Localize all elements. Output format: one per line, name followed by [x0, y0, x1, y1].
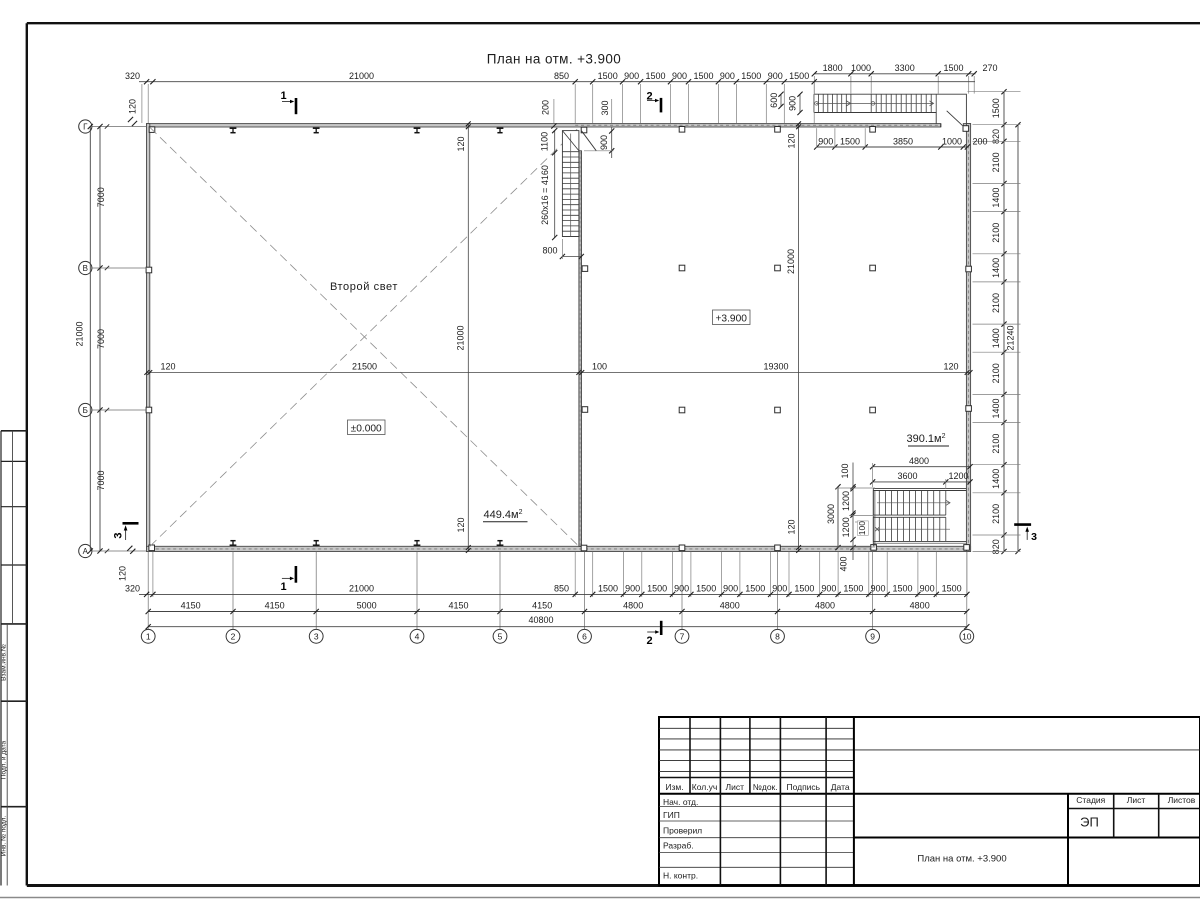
svg-text:900: 900	[818, 136, 833, 146]
svg-text:1500: 1500	[598, 71, 618, 81]
svg-text:1: 1	[146, 632, 151, 642]
svg-text:270: 270	[982, 63, 997, 73]
svg-text:900: 900	[625, 584, 640, 594]
svg-text:1800: 1800	[823, 63, 843, 73]
svg-text:Г: Г	[83, 123, 88, 132]
svg-text:900: 900	[672, 71, 687, 81]
svg-text:План на отм. +3.900: План на отм. +3.900	[487, 52, 621, 67]
svg-text:1: 1	[280, 90, 286, 102]
svg-text:8: 8	[775, 632, 780, 642]
svg-text:1000: 1000	[942, 136, 962, 146]
svg-text:21000: 21000	[455, 325, 465, 350]
svg-text:1200: 1200	[948, 471, 968, 481]
svg-text:1400: 1400	[991, 398, 1001, 418]
svg-text:21000: 21000	[75, 321, 85, 346]
svg-text:Лист: Лист	[1127, 795, 1146, 805]
svg-text:100: 100	[592, 362, 607, 372]
svg-text:ГИП: ГИП	[663, 810, 680, 820]
svg-text:449.4м2: 449.4м2	[484, 509, 523, 521]
svg-text:900: 900	[772, 584, 787, 594]
svg-text:3: 3	[1031, 531, 1037, 543]
svg-text:6: 6	[582, 632, 587, 642]
svg-text:120: 120	[456, 136, 466, 151]
svg-text:900: 900	[870, 584, 885, 594]
svg-text:800: 800	[542, 246, 557, 256]
svg-text:320: 320	[125, 71, 140, 81]
svg-text:1500: 1500	[598, 584, 618, 594]
svg-text:100: 100	[840, 463, 850, 478]
svg-text:5: 5	[498, 632, 503, 642]
svg-text:1400: 1400	[991, 469, 1001, 489]
svg-text:3: 3	[112, 532, 124, 538]
svg-text:120: 120	[117, 566, 127, 581]
svg-text:21500: 21500	[352, 362, 377, 372]
svg-text:4150: 4150	[181, 601, 201, 611]
svg-text:1500: 1500	[943, 63, 963, 73]
svg-text:1500: 1500	[843, 584, 863, 594]
svg-text:2: 2	[231, 632, 236, 642]
svg-text:2: 2	[646, 635, 652, 647]
svg-text:3600: 3600	[897, 471, 917, 481]
svg-text:Подп. и дата: Подп. и дата	[1, 740, 8, 779]
svg-text:3: 3	[314, 632, 319, 642]
svg-text:План на отм. +3.900: План на отм. +3.900	[917, 854, 1006, 865]
svg-text:4: 4	[415, 632, 420, 642]
svg-text:390.1м2: 390.1м2	[907, 433, 946, 445]
svg-text:А: А	[83, 547, 89, 556]
svg-text:120: 120	[160, 362, 175, 372]
svg-text:7: 7	[680, 632, 685, 642]
svg-text:2100: 2100	[991, 363, 1001, 383]
svg-text:9: 9	[870, 632, 875, 642]
svg-text:3000: 3000	[826, 504, 836, 524]
svg-text:Разраб.: Разраб.	[663, 840, 694, 850]
svg-text:900: 900	[768, 71, 783, 81]
svg-text:820: 820	[991, 129, 1001, 144]
svg-text:3300: 3300	[895, 63, 915, 73]
svg-text:Листов: Листов	[1168, 795, 1196, 805]
svg-text:900: 900	[624, 71, 639, 81]
svg-text:120: 120	[786, 519, 796, 534]
svg-text:1500: 1500	[794, 584, 814, 594]
svg-text:Дата: Дата	[831, 782, 850, 792]
svg-text:200: 200	[540, 100, 550, 115]
svg-text:2100: 2100	[991, 504, 1001, 524]
svg-text:7000: 7000	[96, 470, 106, 490]
svg-text:2100: 2100	[991, 293, 1001, 313]
svg-text:900: 900	[599, 135, 609, 150]
svg-text:900: 900	[920, 584, 935, 594]
svg-text:1100: 1100	[539, 132, 549, 151]
svg-text:3850: 3850	[893, 136, 913, 146]
svg-text:№док.: №док.	[753, 782, 778, 792]
svg-text:21000: 21000	[349, 584, 374, 594]
svg-text:4150: 4150	[448, 601, 468, 611]
svg-text:1500: 1500	[789, 71, 809, 81]
svg-text:19300: 19300	[763, 362, 788, 372]
svg-text:1500: 1500	[942, 584, 962, 594]
svg-text:Лист: Лист	[726, 782, 745, 792]
svg-text:2: 2	[646, 90, 652, 102]
svg-text:1500: 1500	[693, 71, 713, 81]
svg-text:4150: 4150	[532, 601, 552, 611]
svg-text:1500: 1500	[741, 71, 761, 81]
svg-text:2100: 2100	[991, 434, 1001, 454]
svg-text:1500: 1500	[647, 584, 667, 594]
svg-text:300: 300	[600, 100, 610, 115]
svg-text:400: 400	[838, 556, 848, 571]
svg-text:В: В	[83, 264, 88, 273]
svg-text:4800: 4800	[910, 601, 930, 611]
svg-text:21000: 21000	[786, 249, 796, 274]
svg-text:1400: 1400	[991, 188, 1001, 208]
svg-text:320: 320	[125, 584, 140, 594]
svg-text:Кол.уч: Кол.уч	[692, 782, 718, 792]
svg-text:21000: 21000	[349, 71, 374, 81]
svg-text:5000: 5000	[357, 601, 377, 611]
svg-text:21240: 21240	[1005, 325, 1015, 350]
svg-text:120: 120	[943, 362, 958, 372]
svg-text:1500: 1500	[840, 136, 860, 146]
svg-text:Н. контр.: Н. контр.	[663, 870, 698, 880]
svg-text:Стадия: Стадия	[1076, 795, 1105, 805]
svg-text:4150: 4150	[265, 601, 285, 611]
svg-text:1000: 1000	[851, 63, 871, 73]
svg-text:120: 120	[456, 517, 466, 532]
svg-text:1: 1	[280, 581, 286, 593]
svg-text:260х16 = 4160: 260х16 = 4160	[540, 165, 550, 225]
svg-text:7000: 7000	[96, 329, 106, 349]
svg-text:120: 120	[786, 133, 796, 148]
svg-text:+3.900: +3.900	[715, 313, 747, 324]
svg-text:1200: 1200	[841, 517, 851, 537]
svg-text:Проверил: Проверил	[663, 826, 702, 836]
svg-text:Б: Б	[83, 406, 88, 415]
svg-text:ЭП: ЭП	[1080, 815, 1099, 830]
svg-text:4800: 4800	[720, 601, 740, 611]
svg-text:1500: 1500	[645, 71, 665, 81]
svg-text:1200: 1200	[841, 491, 851, 511]
svg-text:Второй свет: Второй свет	[330, 281, 398, 293]
svg-text:4800: 4800	[815, 601, 835, 611]
svg-text:Взам.инв.№: Взам.инв.№	[1, 644, 8, 681]
svg-text:1500: 1500	[991, 98, 1001, 118]
svg-text:900: 900	[787, 96, 797, 111]
svg-text:900: 900	[720, 71, 735, 81]
svg-text:1500: 1500	[892, 584, 912, 594]
svg-text:1500: 1500	[745, 584, 765, 594]
svg-text:900: 900	[723, 584, 738, 594]
svg-text:600: 600	[769, 93, 779, 108]
svg-text:100: 100	[857, 521, 867, 535]
svg-text:2100: 2100	[991, 223, 1001, 243]
svg-text:Нач. отд.: Нач. отд.	[663, 797, 698, 807]
svg-text:2100: 2100	[991, 152, 1001, 172]
svg-text:120: 120	[127, 99, 137, 114]
svg-text:4800: 4800	[623, 601, 643, 611]
svg-text:900: 900	[674, 584, 689, 594]
svg-text:900: 900	[821, 584, 836, 594]
svg-text:850: 850	[554, 584, 569, 594]
svg-text:1400: 1400	[991, 258, 1001, 278]
svg-text:1500: 1500	[696, 584, 716, 594]
svg-text:Подпись: Подпись	[786, 782, 820, 792]
svg-text:850: 850	[554, 71, 569, 81]
svg-text:200: 200	[972, 136, 987, 146]
svg-text:10: 10	[962, 632, 972, 642]
svg-text:Инв. № подл.: Инв. № подл.	[1, 816, 8, 857]
svg-text:1400: 1400	[991, 328, 1001, 348]
svg-text:±0.000: ±0.000	[351, 423, 382, 434]
svg-text:Изм.: Изм.	[665, 782, 683, 792]
svg-text:4800: 4800	[909, 456, 929, 466]
svg-text:7000: 7000	[96, 187, 106, 207]
svg-text:40800: 40800	[528, 615, 553, 625]
svg-text:820: 820	[991, 539, 1001, 554]
